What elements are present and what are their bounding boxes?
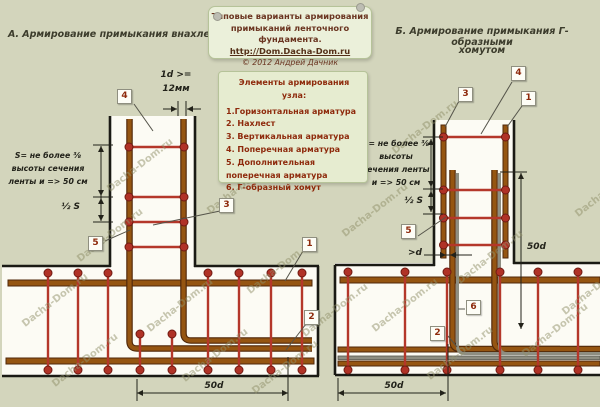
right-callout-1: 1 [521,91,536,106]
left-callout-3: 3 [219,198,234,213]
left-bar-diameter-label-line1: 1d >= [148,70,204,80]
note-copyright: © 2012 Андрей Дачник [209,57,371,69]
left-callout-4: 4 [117,89,132,104]
note-pin-icon [213,12,222,21]
right-callout-2: 2 [430,326,445,341]
note-line2: примыканий ленточного фундамента. [209,23,371,46]
left-bar-diameter-label-line2: 12мм [148,84,204,94]
note-pin-icon [356,3,365,12]
left-callout-1: 1 [302,237,317,252]
note-line1: Типовые варианты армирования [209,11,371,23]
left-spacing-note: S= не более ⅜ высоты сечения ленты и => … [0,149,96,188]
legend-item: 4. Поперечная арматура [226,144,362,157]
right-callout-3: 3 [458,87,473,102]
right-spacing-note: S= не более ⅜ высоты сечения ленты и => … [358,137,434,189]
legend-box: Элементы армирования узла: 1.Горизонталь… [218,71,368,183]
legend-item: 6. Г-образный хомут [226,182,362,195]
left-half-s-label: ½ S [35,202,80,212]
right-gap-d-label: >d [400,248,422,258]
note-box: Типовые варианты армирования примыканий … [208,6,372,59]
note-link[interactable]: http://Dom.Dacha-Dom.ru [209,46,371,58]
legend-item: 1.Горизонтальная арматура [226,106,362,119]
left-callout-2: 2 [304,310,319,325]
right-hook-50d-label: 50d [527,242,561,252]
legend-item: 5. Дополнительная поперечная арматура [226,157,362,183]
right-diagram-title-line2: хомутом [368,45,596,56]
right-callout-6: 6 [466,300,481,315]
right-half-s-label: ½ S [383,196,423,206]
reinforcement-diagram-page: А. Армирование примыкания внахлест Б. Ар… [0,0,600,407]
legend-header: Элементы армирования узла: [226,77,362,103]
left-overlap-50d-label: 50d [192,381,236,391]
right-overlap-50d-label: 50d [372,381,416,391]
left-diagram-title: А. Армирование примыкания внахлест [8,29,221,40]
left-callout-5: 5 [88,236,103,251]
right-callout-5: 5 [401,224,416,239]
legend-items: 1.Горизонтальная арматура2. Нахлест3. Ве… [226,106,362,196]
legend-item: 3. Вертикальная арматура [226,131,362,144]
right-callout-4: 4 [511,66,526,81]
legend-item: 2. Нахлест [226,118,362,131]
